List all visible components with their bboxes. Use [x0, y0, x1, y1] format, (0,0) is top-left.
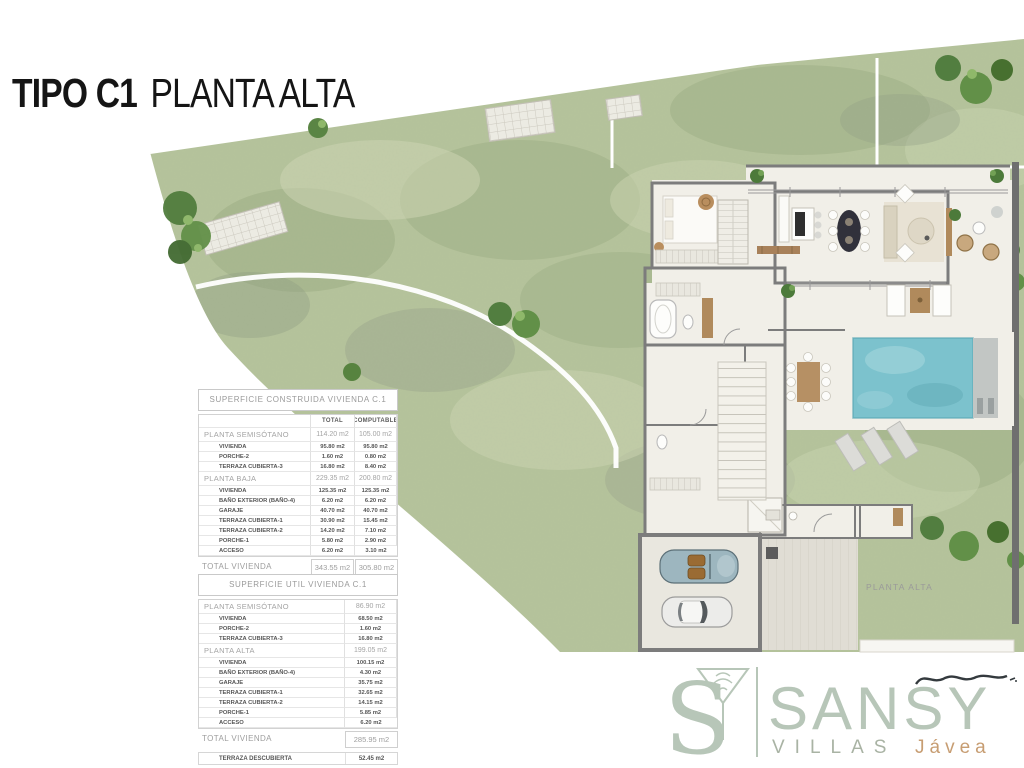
logo-location: Jávea [915, 737, 991, 758]
table-row-label: BAÑO EXTERIOR (BAÑO-4) [199, 496, 311, 506]
table-row-label: PLANTA SEMISÓTANO [199, 428, 311, 442]
table-title: SUPERFICIE CONSTRUIDA VIVIENDA C.1 [198, 389, 398, 411]
plan-label: PLANTA ALTA [866, 582, 933, 592]
bathtub-icon [650, 300, 676, 338]
table-row-label: ACCESO [199, 718, 345, 728]
table-row-value: 86.90 m2 [345, 600, 397, 614]
table-row-label: PLANTA SEMISÓTANO [199, 600, 345, 614]
plant-icon [750, 169, 764, 183]
table-row-value: 125.35 m2 [311, 486, 355, 496]
table-row-label: PORCHE-1 [199, 708, 345, 718]
table-row-value: 14.15 m2 [345, 698, 397, 708]
garden-stairs [718, 362, 766, 500]
table-colhead: COMPUTABLE [355, 415, 397, 428]
table-superficie-construida: SUPERFICIE CONSTRUIDA VIVIENDA C.1 TOTAL… [198, 389, 398, 593]
toilet-icon [683, 315, 693, 329]
table-row-label: TERRAZA CUBIERTA-1 [199, 688, 345, 698]
table-row-label: TERRAZA CUBIERTA-2 [199, 526, 311, 536]
table-row-value: 35.75 m2 [345, 678, 397, 688]
table-row-value: 6.20 m2 [311, 496, 355, 506]
car-icon-blue [660, 550, 738, 583]
page-title-type: TIPO C1 [12, 70, 137, 116]
table-row-label: PLANTA ALTA [199, 644, 345, 658]
table-total-label: TOTAL VIVIENDA [198, 731, 344, 746]
table-grid: TOTALCOMPUTABLEPLANTA SEMISÓTANO114.20 m… [198, 414, 398, 557]
logo-monogram: S [664, 663, 731, 765]
plant-icon [949, 209, 961, 221]
table-row-value: 114.20 m2 [311, 428, 355, 442]
table-row-label: VIVIENDA [199, 614, 345, 624]
table-row-label: VIVIENDA [199, 658, 345, 668]
table-row-value: 6.20 m2 [345, 718, 397, 728]
table-extra-value: 52.45 m2 [345, 753, 397, 764]
table-row-value: 125.35 m2 [355, 486, 397, 496]
table-row-value: 16.80 m2 [311, 462, 355, 472]
table-row-label: PORCHE-1 [199, 536, 311, 546]
table-row-label: TERRAZA CUBIERTA-2 [199, 698, 345, 708]
wardrobe-icon [656, 283, 700, 296]
floor-plan-sheet: TIPO C1 PLANTA ALTA [0, 0, 1024, 768]
table-row-label: VIVIENDA [199, 442, 311, 452]
table-total-row: TOTAL VIVIENDA285.95 m2 [198, 731, 398, 748]
wicker-chair-icon [983, 244, 999, 260]
table-row-value: 40.70 m2 [355, 506, 397, 516]
pool-ladder-icon [977, 398, 983, 414]
table-row-value: 5.85 m2 [345, 708, 397, 718]
table-row-value: 95.80 m2 [311, 442, 355, 452]
table-row-value: 6.20 m2 [311, 546, 355, 556]
table-row-value: 3.10 m2 [355, 546, 397, 556]
table-row-value: 15.45 m2 [355, 516, 397, 526]
table-row-value: 68.50 m2 [345, 614, 397, 624]
table-total-label: TOTAL VIVIENDA [198, 559, 310, 574]
table-extra-label: TERRAZA DESCUBIERTA [199, 753, 345, 764]
dining-table-icon [837, 210, 861, 252]
plant-icon [781, 284, 795, 298]
wicker-chair-icon [957, 235, 973, 251]
table-row-label: TERRAZA CUBIERTA-1 [199, 516, 311, 526]
table-row-label: BAÑO EXTERIOR (BAÑO-4) [199, 668, 345, 678]
table-row-value: 1.60 m2 [345, 624, 397, 634]
table-row-value: 16.80 m2 [345, 634, 397, 644]
table-row-value: 7.10 m2 [355, 526, 397, 536]
pool [845, 332, 1014, 426]
rug-icon [698, 194, 714, 210]
table-row-value: 2.90 m2 [355, 536, 397, 546]
plant-icon [990, 169, 1004, 183]
utility-fixture [766, 510, 780, 520]
table-row-label: TERRAZA CUBIERTA-3 [199, 634, 345, 644]
sofa-icon [884, 206, 897, 258]
equipment-icon [766, 547, 778, 559]
table-row-label: TERRAZA CUBIERTA-3 [199, 462, 311, 472]
utility-fixture [893, 508, 903, 526]
table-row-value: 0.80 m2 [355, 452, 397, 462]
table-row-value: 8.40 m2 [355, 462, 397, 472]
table-row-label: GARAJE [199, 678, 345, 688]
table-row-value: 100.15 m2 [345, 658, 397, 668]
table-row-value: 199.05 m2 [345, 644, 397, 658]
table-colhead [199, 415, 311, 428]
vanity-icon [650, 478, 700, 490]
table-superficie-util: SUPERFICIE UTIL VIVIENDA C.1 PLANTA SEMI… [198, 574, 398, 765]
table-row-value: 6.20 m2 [355, 496, 397, 506]
table-row-value: 4.30 m2 [345, 668, 397, 678]
table-row-value: 1.60 m2 [311, 452, 355, 462]
table-extra-row: TERRAZA DESCUBIERTA52.45 m2 [198, 752, 398, 765]
table-row-value: 105.00 m2 [355, 428, 397, 442]
table-row-value: 200.80 m2 [355, 472, 397, 486]
table-row-value: 95.80 m2 [355, 442, 397, 452]
table-row-label: ACCESO [199, 546, 311, 556]
logo-brand: SANSY [768, 675, 991, 742]
table-row-label: PLANTA BAJA [199, 472, 311, 486]
logo-sub: VILLAS [772, 737, 896, 758]
table-row-label: GARAJE [199, 506, 311, 516]
table-row-value: 5.80 m2 [311, 536, 355, 546]
table-row-value: 14.20 m2 [311, 526, 355, 536]
outdoor-dining-table-icon [797, 362, 820, 402]
car-icon-white [662, 597, 732, 627]
table-row-value: 32.65 m2 [345, 688, 397, 698]
dining-area [829, 210, 870, 252]
table-total-value: 285.95 m2 [345, 731, 398, 748]
pool-ladder-icon [988, 398, 994, 414]
table-colhead: TOTAL [311, 415, 355, 428]
toilet-icon [657, 435, 667, 449]
table-row-value: 229.35 m2 [311, 472, 355, 486]
wardrobe-icon [702, 298, 713, 338]
table-row-value: 40.70 m2 [311, 506, 355, 516]
utility-fixture [789, 512, 797, 520]
table-row-value: 30.90 m2 [311, 516, 355, 526]
table-title: SUPERFICIE UTIL VIVIENDA C.1 [198, 574, 398, 596]
brand-logo: S SANSY VILLAS Jávea [655, 655, 1020, 765]
table-grid: PLANTA SEMISÓTANO86.90 m2VIVIENDA68.50 m… [198, 599, 398, 729]
table-row-label: VIVIENDA [199, 486, 311, 496]
pool-deck [973, 338, 998, 418]
table-row-label: PORCHE-2 [199, 452, 311, 462]
table-row-label: PORCHE-2 [199, 624, 345, 634]
